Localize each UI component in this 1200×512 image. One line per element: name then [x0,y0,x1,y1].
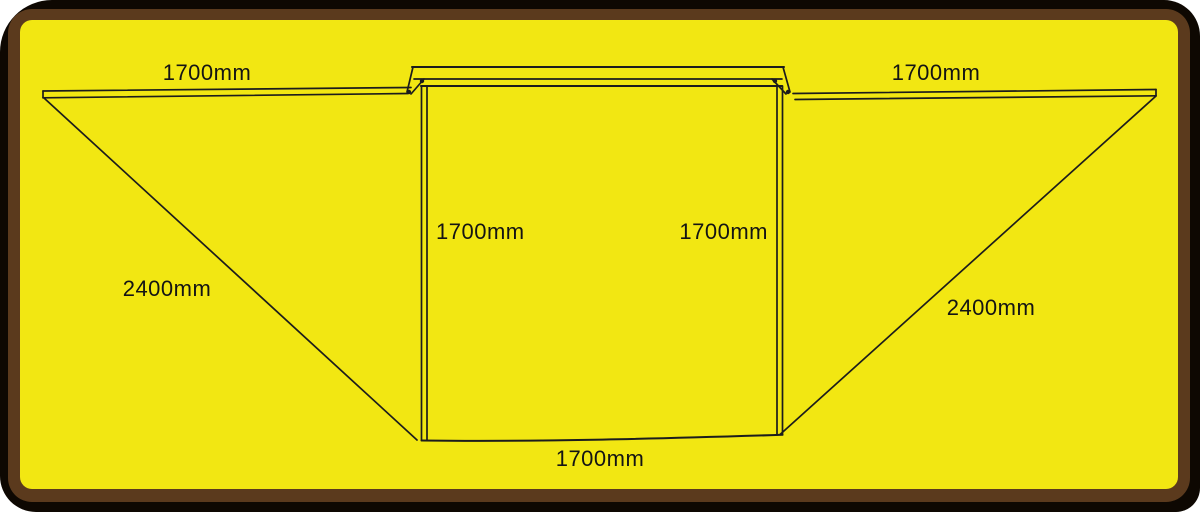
dim-label-body-left: 1700mm [436,219,525,244]
dim-label-body-right: 1700mm [679,219,768,244]
drawing-sheet: 1700mm 1700mm 1700mm 1700mm 2400mm 2400m… [0,0,1200,512]
dim-label-diagonal-right: 2400mm [947,295,1036,320]
left-wing-diagonal [44,98,417,440]
top-rail [407,67,790,94]
left-hinge-pin [420,79,424,83]
left-wing [43,88,417,441]
dim-label-wing-left-top: 1700mm [163,60,252,85]
dim-label-wing-right-top: 1700mm [892,60,981,85]
right-hinge-pin [773,79,777,83]
dim-label-body-bottom: 1700mm [556,446,645,471]
right-wing-diagonal [780,96,1156,435]
awning-diagram: 1700mm 1700mm 1700mm 1700mm 2400mm 2400m… [0,0,1200,512]
center-panel [421,86,783,441]
dim-label-diagonal-left: 2400mm [123,276,212,301]
right-wing [780,90,1156,435]
right-hinge-pin-2 [786,90,790,94]
